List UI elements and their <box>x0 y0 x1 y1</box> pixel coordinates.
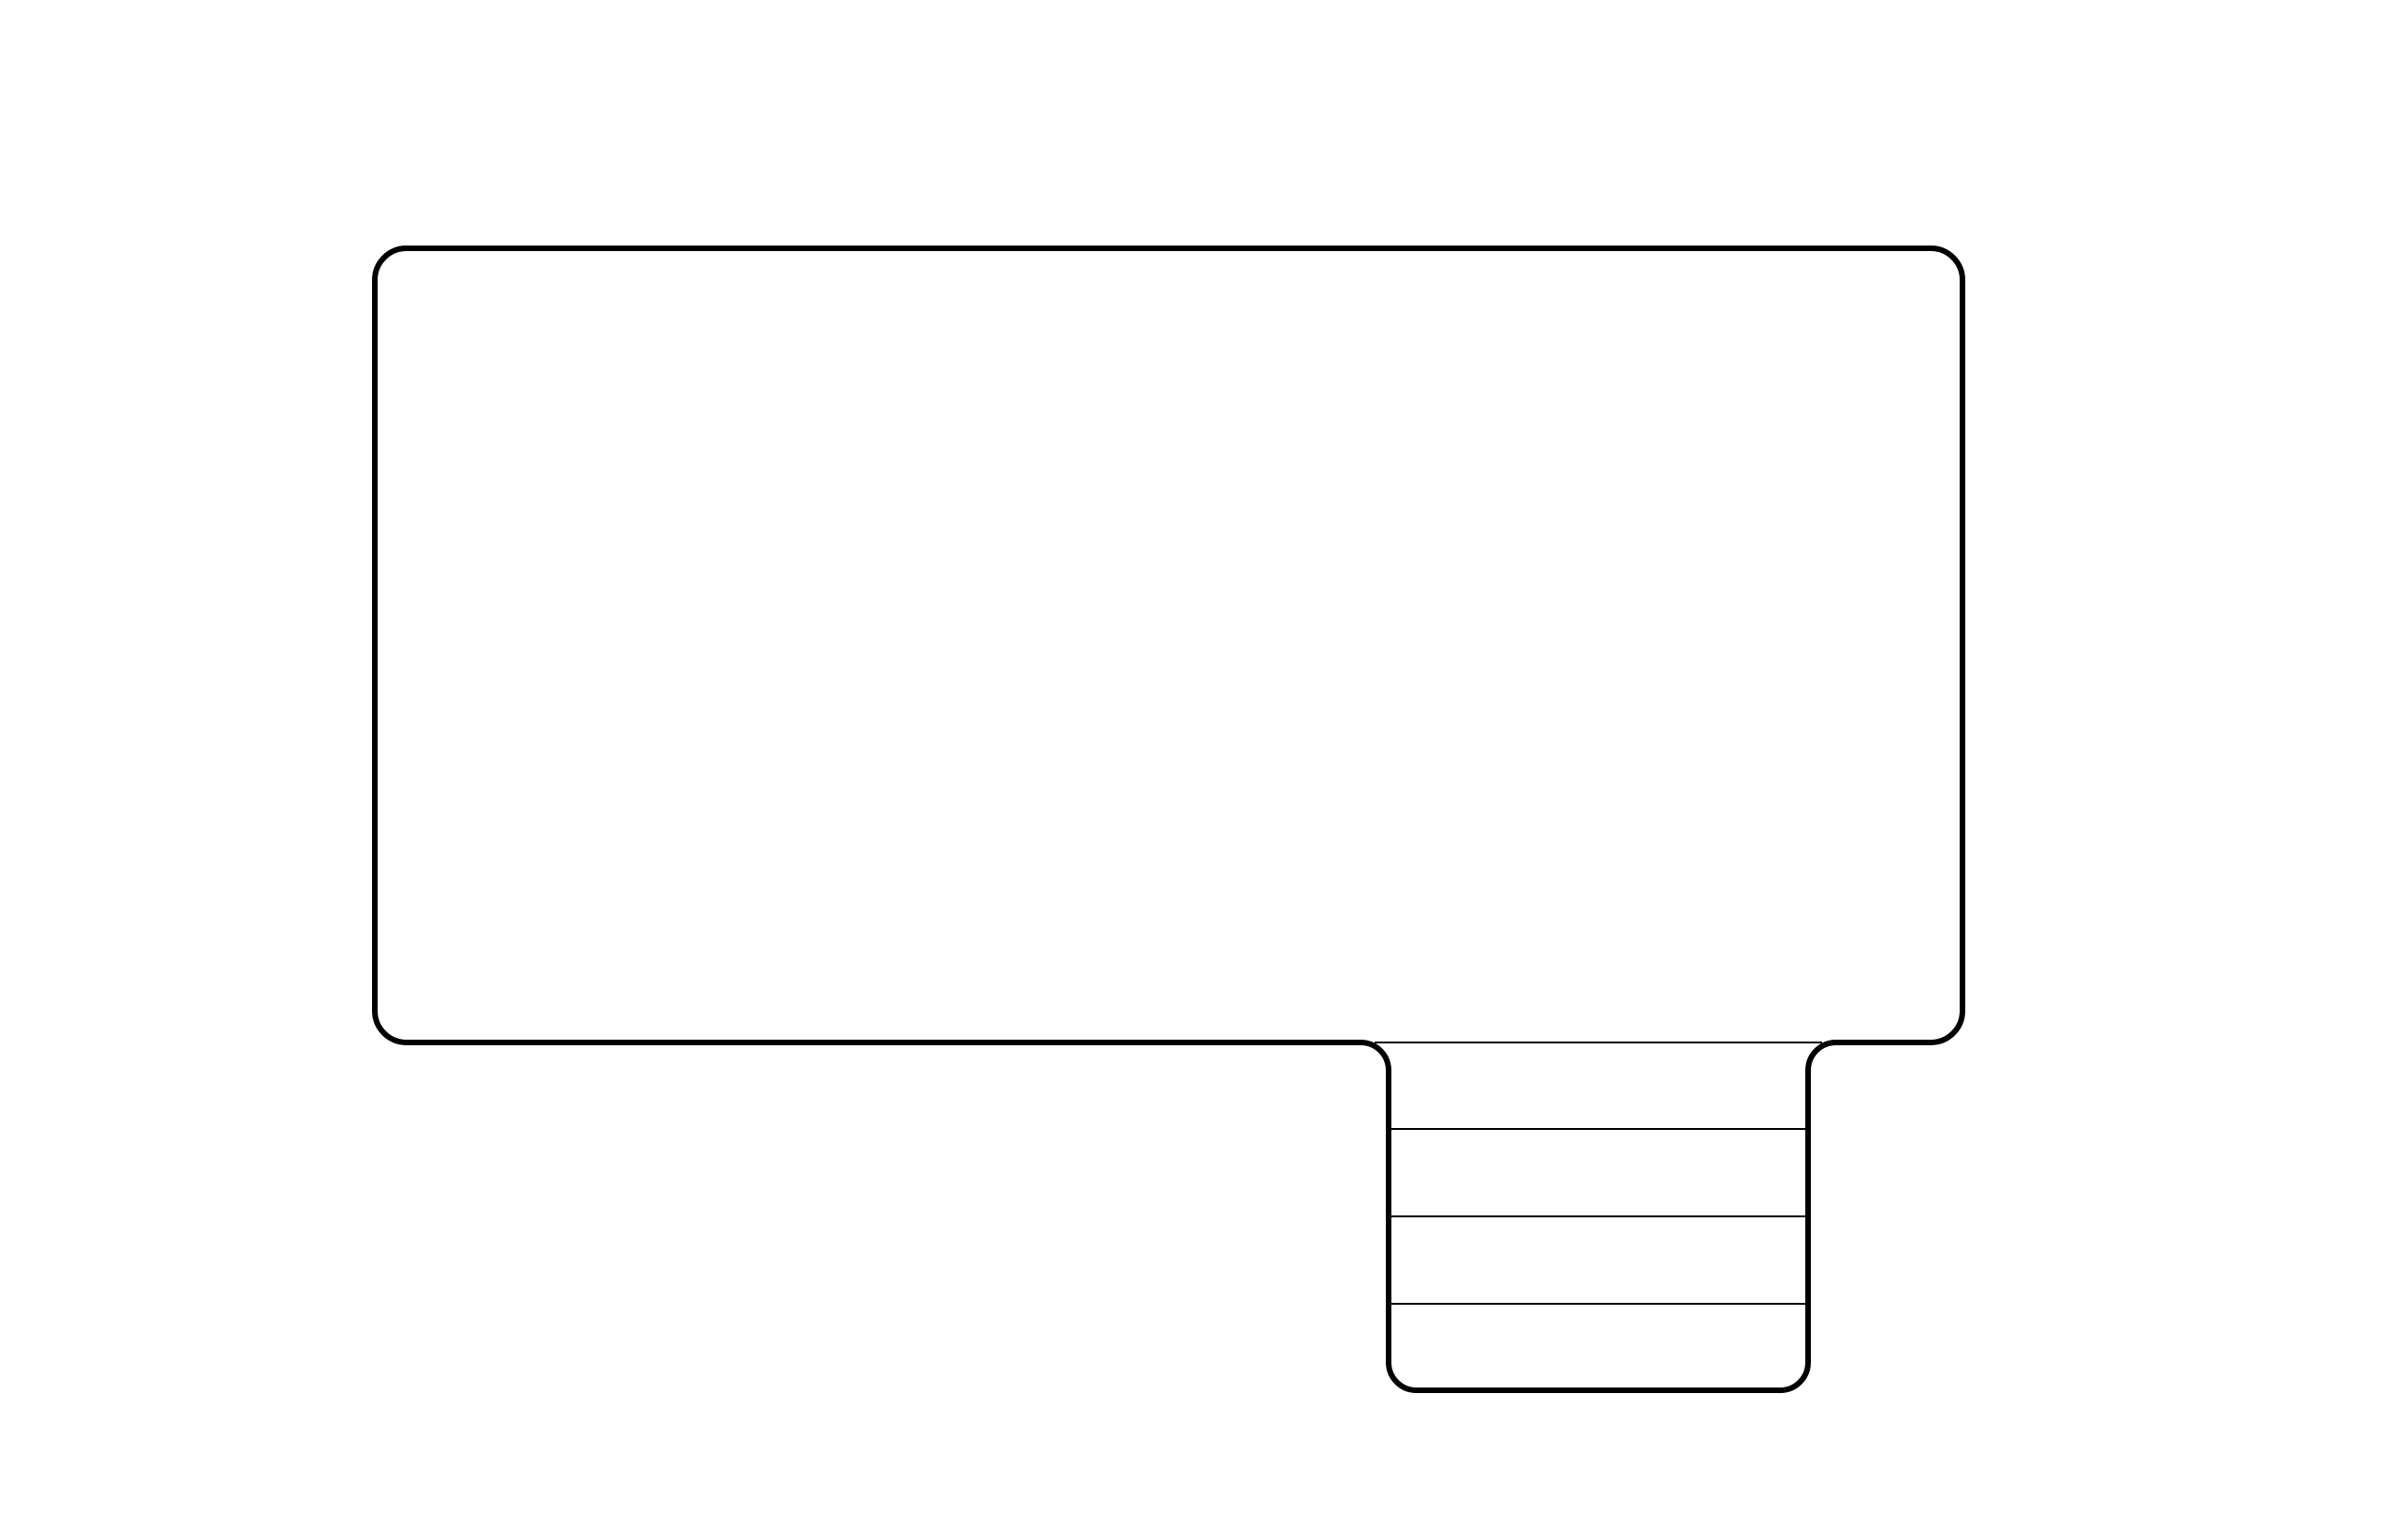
diagram-svg <box>0 0 2381 1540</box>
diagram <box>0 0 2381 1540</box>
step-divider-group <box>1389 1129 1808 1304</box>
panel-outline <box>375 248 1962 1390</box>
page-background <box>0 0 2381 1540</box>
